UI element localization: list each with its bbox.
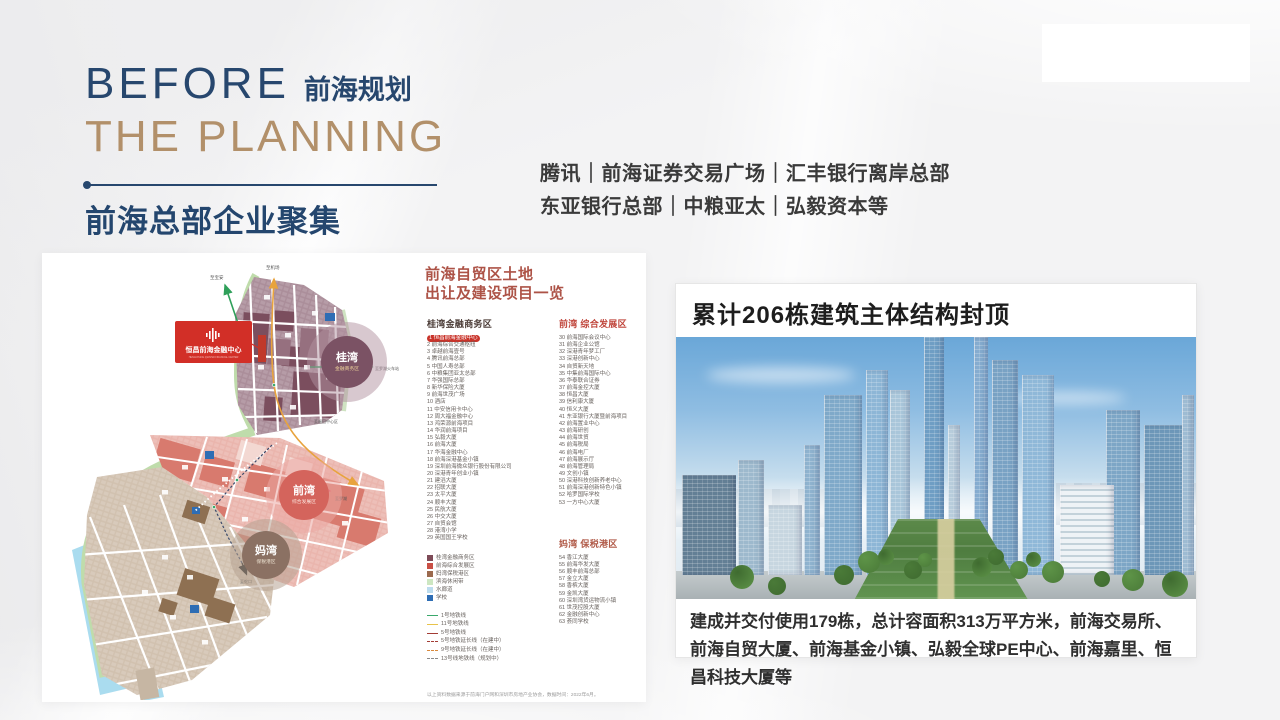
svg-text:恒昌前海金融中心: 恒昌前海金融中心	[185, 345, 242, 354]
project-item: 46 前海电厂	[559, 450, 645, 457]
top-right-white-block	[1042, 24, 1250, 82]
project-list-title: 前海自贸区土地 出让及建设项目一览	[425, 265, 640, 303]
city-rendering-image	[676, 337, 1196, 599]
tree	[768, 577, 786, 595]
project-item: 40 恒义大厦	[559, 407, 645, 414]
project-item: 11 中安信用卡中心	[427, 407, 553, 414]
project-item: 35 中集前海国际中心	[559, 371, 645, 378]
title-english-line2: THE PLANNING	[85, 112, 446, 163]
project-item: 18 前海深港基金小镇	[427, 457, 553, 464]
project-item: 16 前海大厦	[427, 442, 553, 449]
title-chinese-tag: 前海规划	[304, 76, 412, 106]
project-item: 53 一方中心大厦	[559, 500, 645, 507]
tree	[1042, 561, 1064, 583]
legend-color-swatch	[427, 563, 433, 569]
building	[992, 360, 1018, 575]
companies-list: 腾讯｜前海证券交易广场｜汇丰银行离岸总部 东亚银行总部｜中粮亚太｜弘毅资本等	[540, 158, 950, 224]
tree	[1094, 571, 1110, 587]
project-item: 63 荟同学校	[559, 619, 645, 626]
direction-label: 至宝安	[210, 274, 224, 281]
svg-text:HENGCHANG QIANHAI FINANCIAL CE: HENGCHANG QIANHAI FINANCIAL CENTER	[189, 356, 239, 359]
building	[804, 445, 820, 575]
legend-zone-row: 前海综合发展区	[427, 562, 553, 570]
companies-line2: 东亚银行总部｜中粮亚太｜弘毅资本等	[540, 191, 950, 224]
page-title-bold: 企业聚集	[213, 204, 341, 239]
tree	[878, 549, 894, 565]
legend-color-swatch	[427, 587, 433, 593]
companies-line1: 腾讯｜前海证券交易广场｜汇丰银行离岸总部	[540, 158, 950, 191]
data-source-footnote: 以上资料数据来源于前海门户网和深圳市房地产业协会，数据时间：2022年6月。	[427, 691, 599, 698]
project-list-col2: 前湾 综合发展区30 前海国际会议中心31 前海企业公馆32 深港青年梦工厂33…	[559, 317, 645, 630]
project-item: 17 华海金融中心	[427, 450, 553, 457]
legend-zone-row: 桂湾金融商务区	[427, 554, 553, 562]
legend-zone-row: 水廊道	[427, 586, 553, 594]
tree	[1122, 569, 1144, 591]
project-item: 10 酒店	[427, 399, 553, 406]
project-item: 5 中国人寿总部	[427, 364, 553, 371]
project-item: 55 前海华发大厦	[559, 562, 645, 569]
project-item: 45 前海税局	[559, 442, 645, 449]
project-item: 13 鸿荣源前海项目	[427, 421, 553, 428]
construction-card: 累计206栋建筑主体结构封顶 建成并交付使用179栋，总计容面积313万平方米，…	[675, 283, 1197, 658]
direction-label: 至福田中心区	[314, 418, 338, 424]
legend-line-swatch	[427, 615, 438, 616]
map-legend-lines: 1号地铁线11号地铁线5号地铁线5号地铁延长线（在建中）9号地铁延长线（在建中）…	[427, 612, 553, 664]
legend-line-swatch	[427, 633, 438, 634]
section-header: 妈湾 保税港区	[559, 537, 645, 550]
building	[1022, 375, 1054, 575]
legend-zone-row: 滨海休闲带	[427, 578, 553, 586]
slide: BEFORE 前海规划 THE PLANNING 前海总部企业聚集 腾讯｜前海证…	[0, 0, 1280, 720]
page-title: 前海总部企业聚集	[85, 196, 341, 241]
project-item: 58 香槟大厦	[559, 583, 645, 590]
tree	[1010, 561, 1028, 579]
map-panel: 至宝安 至机场 至罗湖火车站 至福田中心区 至罗湖 至蛇口 桂湾 金融商务区	[42, 253, 646, 702]
header: BEFORE 前海规划 THE PLANNING	[85, 62, 446, 163]
svg-text:前湾: 前湾	[293, 483, 315, 497]
project-item: 60 深圳湾货运物流小镇	[559, 598, 645, 605]
project-list: 前海自贸区土地 出让及建设项目一览 桂湾金融商务区1 恒昌前海金融中心2 前海综…	[425, 265, 640, 698]
project-item: 24 顺丰大厦	[427, 500, 553, 507]
legend-color-swatch	[427, 555, 433, 561]
project-item: 12 周大福金融中心	[427, 414, 553, 421]
legend-line-row: 5号地铁线	[427, 629, 553, 638]
project-item: 34 自贸新天地	[559, 364, 645, 371]
project-item: 26 中交大厦	[427, 514, 553, 521]
svg-text:金融商务区: 金融商务区	[335, 365, 359, 372]
building	[1060, 485, 1114, 575]
qianhai-map: 至宝安 至机场 至罗湖火车站 至福田中心区 至罗湖 至蛇口 桂湾 金融商务区	[42, 255, 422, 700]
legend-line-row: 9号地铁延长线（在建中）	[427, 646, 553, 655]
project-item: 59 金凯大厦	[559, 591, 645, 598]
svg-text:保税港区: 保税港区	[256, 558, 275, 565]
tree	[918, 553, 932, 567]
project-item: 47 前海展示厅	[559, 457, 645, 464]
map-school-marker	[325, 313, 335, 321]
page-title-normal: 前海总部	[85, 204, 213, 239]
legend-color-swatch	[427, 571, 433, 577]
building	[738, 460, 764, 575]
title-english-line1: BEFORE	[85, 62, 290, 106]
project-item: 6 中粮集团亚太总部	[427, 371, 553, 378]
tree	[730, 565, 754, 589]
title-divider	[85, 184, 437, 186]
tree	[834, 565, 854, 585]
legend-line-swatch	[427, 650, 438, 651]
project-item: 41 东亚银行大厦暨前海项目	[559, 414, 645, 421]
project-item: 19 深圳前海微众银行股份有限公司	[427, 464, 553, 471]
svg-text:妈湾: 妈湾	[255, 543, 277, 557]
svg-text:桂湾: 桂湾	[335, 350, 358, 364]
legend-line-row: 5号地铁延长线（在建中）	[427, 637, 553, 646]
building	[768, 505, 802, 575]
legend-line-row: 11号地铁线	[427, 620, 553, 629]
map-school-marker	[205, 451, 214, 459]
section-header: 桂湾金融商务区	[427, 317, 553, 330]
cloud	[706, 367, 856, 383]
legend-line-row: 1号地铁线	[427, 612, 553, 621]
project-item: 48 前海管理局	[559, 464, 645, 471]
construction-caption: 建成并交付使用179栋，总计容面积313万平方米，前海交易所、前海自贸大厦、前海…	[676, 599, 1196, 701]
legend-line-swatch	[427, 624, 438, 625]
building	[682, 475, 736, 575]
tree	[1026, 552, 1041, 567]
tree	[1162, 571, 1188, 597]
project-item: 54 香江大厦	[559, 555, 645, 562]
project-item: 33 深港创新中心	[559, 356, 645, 363]
legend-line-swatch	[427, 641, 438, 642]
building	[1182, 395, 1194, 575]
section-header: 前湾 综合发展区	[559, 317, 645, 330]
zone-label-mawan: 妈湾 保税港区	[230, 519, 302, 591]
project-item: 42 前海置业中心	[559, 421, 645, 428]
map-school-marker	[190, 605, 199, 613]
divider-dot	[83, 181, 91, 189]
legend-color-swatch	[427, 595, 433, 601]
direction-label: 至机场	[266, 264, 280, 271]
project-item: 52 哈罗国际学校	[559, 492, 645, 499]
project-item: 25 民航大厦	[427, 507, 553, 514]
legend-line-swatch	[427, 658, 438, 659]
legend-line-row: 13号线地铁线（规划中）	[427, 655, 553, 664]
svg-text:综合发展区: 综合发展区	[292, 498, 316, 505]
legend-color-swatch	[427, 579, 433, 585]
tree	[988, 549, 1004, 565]
project-item: 61 世茂控股大厦	[559, 605, 645, 612]
construction-headline: 累计206栋建筑主体结构封顶	[676, 284, 1196, 337]
project-item: 29 英国国王学校	[427, 535, 553, 542]
building	[824, 395, 862, 575]
zone-label-guiwan: 桂湾 金融商务区	[307, 322, 387, 402]
project-item: 39 信利康大厦	[559, 399, 645, 406]
project-item: 23 太平大厦	[427, 492, 553, 499]
legend-zone-row: 妈湾保税港区	[427, 570, 553, 578]
legend-zone-row: 学校	[427, 594, 553, 602]
tree	[858, 551, 880, 573]
map-svg: 至宝安 至机场 至罗湖火车站 至福田中心区 至罗湖 至蛇口 桂湾 金融商务区	[42, 255, 422, 700]
project-list-col1: 桂湾金融商务区1 恒昌前海金融中心2 前海综合交通枢纽3 卓越前海壹号4 腾讯前…	[427, 317, 553, 663]
project-item: 4 腾讯前海总部	[427, 356, 553, 363]
map-legend-zones: 桂湾金融商务区前海综合发展区妈湾保税港区滨海休闲带水廊道学校	[427, 554, 553, 602]
